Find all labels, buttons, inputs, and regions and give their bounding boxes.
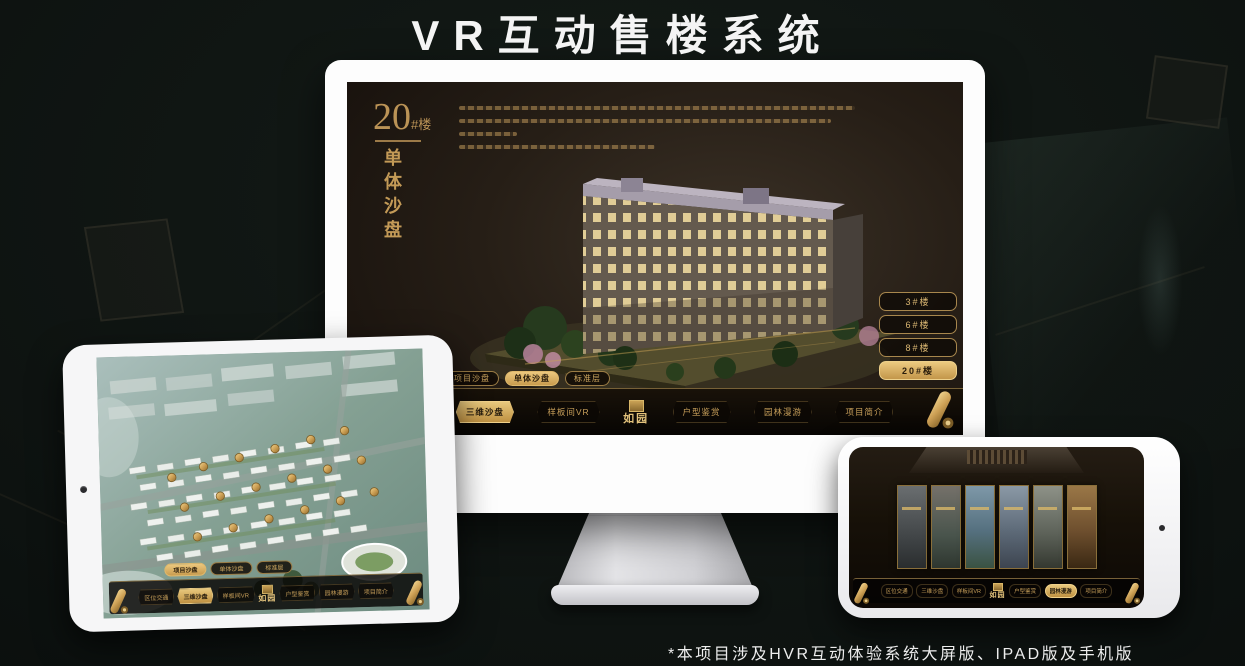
tablet-subtab-standard-floor[interactable]: 标准层 [256, 560, 292, 574]
footnote: *本项目涉及HVR互动体验系统大屏版、IPAD版及手机版 [668, 640, 1134, 664]
scroll-handle-icon[interactable] [850, 582, 872, 606]
background-aerial-photo [968, 117, 1245, 472]
tablet-subtab-project-sandbox[interactable]: 项目沙盘 [164, 563, 206, 577]
tablet-device: 项目沙盘 单体沙盘 标准层 区位交通 三维沙盘 样板间VR 如园 户型鉴赏 园林… [62, 335, 460, 633]
hero-vertical-title: 单体沙盘 [379, 148, 405, 244]
floor-button-8[interactable]: 8#楼 [879, 338, 957, 357]
description-line [459, 145, 655, 149]
scroll-handle-icon[interactable] [105, 588, 132, 617]
nav-item-project-intro[interactable]: 项目简介 [1080, 584, 1112, 598]
nav-item-3d-sandbox[interactable]: 三维沙盘 [456, 401, 514, 423]
phone-screen: 区位交通 三维沙盘 样板间VR 如园 户型鉴赏 园林漫游 项目简介 [849, 447, 1144, 608]
floor-button-group: 3#楼 6#楼 8#楼 20#楼 [879, 292, 957, 380]
interior-lattice [967, 450, 1027, 464]
scroll-handle-icon[interactable] [401, 579, 428, 608]
nav-item-unit-gallery[interactable]: 户型鉴赏 [1009, 584, 1041, 598]
description-line [459, 119, 831, 123]
nav-item-showroom-vr[interactable]: 样板间VR [216, 586, 255, 603]
monitor-stand-base [551, 585, 759, 605]
brand-logo: 如园 [258, 585, 276, 603]
floor-button-6[interactable]: 6#楼 [879, 315, 957, 334]
brand-logo: 如园 [990, 583, 1006, 599]
nav-item-showroom-vr[interactable]: 样板间VR [537, 401, 599, 423]
scroll-handle-icon[interactable] [1121, 582, 1143, 606]
brand-logo-text: 如园 [623, 414, 649, 425]
description-line [459, 106, 855, 110]
hero-building-suffix: #楼 [411, 117, 431, 132]
scene-panel[interactable] [897, 485, 927, 569]
scene-panel[interactable] [1033, 485, 1063, 569]
nav-item-garden-roam[interactable]: 园林漫游 [1045, 584, 1077, 598]
page-title: VR互动售楼系统 [0, 2, 1245, 63]
poster-canvas: VR互动售楼系统 *本项目涉及HVR互动体验系统大屏版、IPAD版及手机版 20… [0, 0, 1245, 666]
scroll-handle-icon[interactable] [919, 390, 959, 432]
monitor-subtabs: 项目沙盘 单体沙盘 标准层 [445, 371, 610, 386]
phone-device: 区位交通 三维沙盘 样板间VR 如园 户型鉴赏 园林漫游 项目简介 [838, 437, 1180, 618]
seal-icon [993, 583, 1003, 591]
nav-item-location[interactable]: 区位交通 [881, 584, 913, 598]
nav-item-unit-gallery[interactable]: 户型鉴赏 [673, 401, 731, 423]
scene-panel[interactable] [1067, 485, 1097, 569]
nav-item-3d-sandbox[interactable]: 三维沙盘 [177, 587, 213, 604]
scene-gallery [849, 485, 1144, 569]
brand-logo-text: 如园 [258, 595, 276, 603]
nav-item-garden-roam[interactable]: 园林漫游 [754, 401, 812, 423]
brand-logo: 如园 [623, 400, 649, 425]
scene-panel[interactable] [931, 485, 961, 569]
description-text-lines [459, 106, 857, 158]
nav-item-project-intro[interactable]: 项目简介 [835, 401, 893, 423]
tablet-subtab-single-sandbox[interactable]: 单体沙盘 [210, 561, 252, 575]
nav-item-unit-gallery[interactable]: 户型鉴赏 [279, 585, 315, 602]
floor-button-3[interactable]: 3#楼 [879, 292, 957, 311]
nav-item-garden-roam[interactable]: 园林漫游 [318, 583, 354, 600]
scene-panel[interactable] [965, 485, 995, 569]
description-line [459, 132, 517, 136]
scene-panel[interactable] [999, 485, 1029, 569]
hero-building-number: 20 [373, 96, 411, 138]
floor-button-20[interactable]: 20#楼 [879, 361, 957, 380]
nav-item-location[interactable]: 区位交通 [138, 588, 174, 605]
phone-navbar: 区位交通 三维沙盘 样板间VR 如园 户型鉴赏 园林漫游 项目简介 [853, 578, 1140, 603]
nav-item-showroom-vr[interactable]: 样板间VR [952, 584, 986, 598]
seal-icon [629, 400, 644, 412]
hero-block: 20#楼 单体沙盘 [373, 98, 431, 244]
subtab-standard-floor[interactable]: 标准层 [565, 371, 610, 386]
background-picture-frame [84, 218, 184, 321]
seal-icon [261, 585, 272, 594]
monitor-stand [557, 510, 753, 588]
hero-divider [375, 140, 421, 142]
nav-item-3d-sandbox[interactable]: 三维沙盘 [916, 584, 948, 598]
tablet-camera-icon [80, 485, 87, 492]
nav-item-project-intro[interactable]: 项目简介 [358, 582, 394, 599]
brand-logo-text: 如园 [990, 592, 1006, 599]
tablet-screen: 项目沙盘 单体沙盘 标准层 区位交通 三维沙盘 样板间VR 如园 户型鉴赏 园林… [96, 348, 429, 618]
subtab-single-sandbox[interactable]: 单体沙盘 [505, 371, 559, 386]
background-building-block [1146, 55, 1228, 129]
building-model-render[interactable] [425, 158, 905, 394]
phone-camera-icon [1159, 525, 1165, 531]
